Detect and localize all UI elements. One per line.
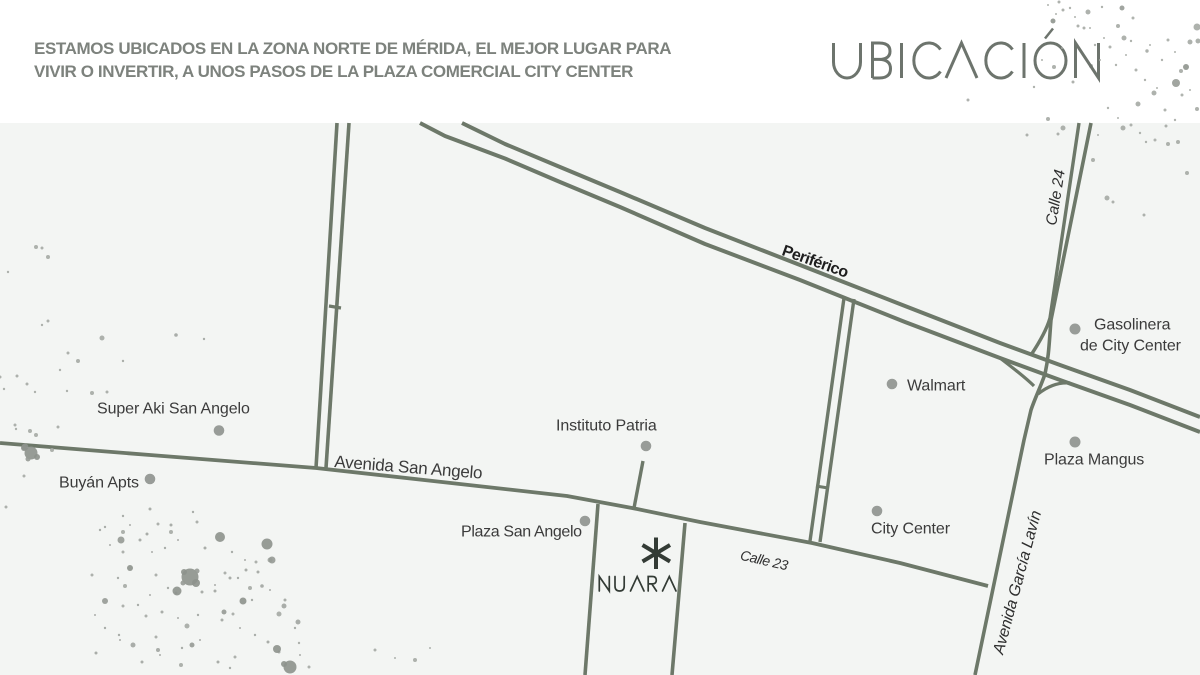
svg-text:Walmart: Walmart bbox=[907, 378, 966, 395]
svg-text:Gasolinera: Gasolinera bbox=[1094, 317, 1171, 334]
svg-text:City Center: City Center bbox=[871, 521, 951, 538]
svg-text:Plaza San Angelo: Plaza San Angelo bbox=[461, 524, 582, 541]
svg-text:de City Center: de City Center bbox=[1080, 338, 1182, 355]
svg-text:Buyán Apts: Buyán Apts bbox=[59, 475, 139, 492]
svg-text:Instituto Patria: Instituto Patria bbox=[556, 418, 657, 435]
svg-text:Plaza Mangus: Plaza Mangus bbox=[1044, 452, 1144, 469]
svg-text:Super Aki San Angelo: Super Aki San Angelo bbox=[97, 401, 250, 418]
